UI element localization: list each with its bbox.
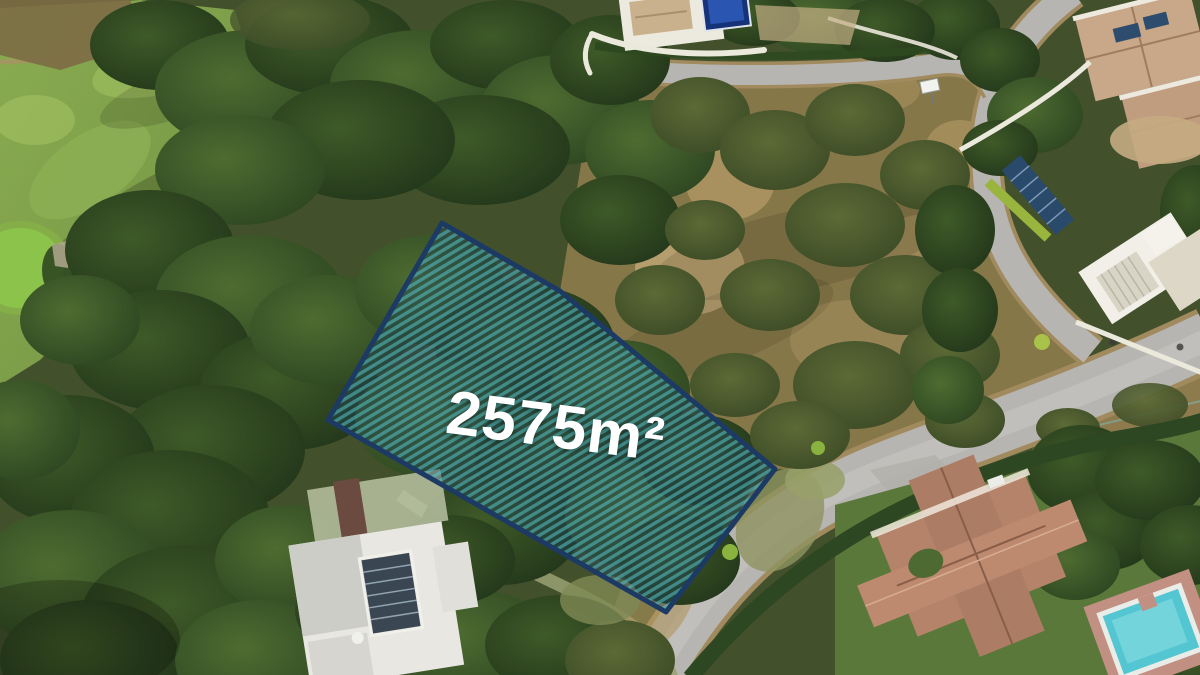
forest-canopy-part [805, 84, 905, 156]
forest-canopy-part [912, 356, 984, 424]
topiary-bush [811, 441, 825, 455]
car-on-road [1177, 344, 1184, 351]
forest-canopy-part [720, 259, 820, 331]
flat-roof-house-part [288, 534, 374, 636]
forest-canopy-part [560, 175, 680, 265]
topiary-bush [1034, 334, 1050, 350]
forest-canopy-part [785, 183, 905, 267]
forest-canopy-part [915, 185, 995, 275]
forest-canopy-part [20, 275, 140, 365]
forest-canopy-part [615, 265, 705, 335]
aerial-photo-svg: 2575m² [0, 0, 1200, 675]
dirt-driveway [755, 5, 860, 45]
topiary-bush [722, 544, 738, 560]
white-villa-navy-pool-part [707, 0, 744, 24]
aerial-photo: 2575m² [0, 0, 1200, 675]
forest-canopy-part [922, 268, 998, 352]
forest-canopy-part [665, 200, 745, 260]
